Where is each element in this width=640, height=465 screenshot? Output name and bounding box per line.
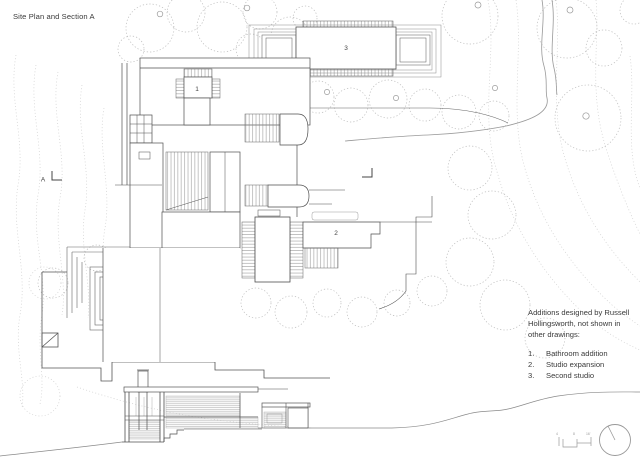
- site-plan-drawing: 1 2 3 A: [0, 0, 640, 465]
- scale-bar: [559, 437, 591, 447]
- building-2-studio-expansion: [242, 196, 432, 309]
- section-a-drawing: [0, 370, 640, 456]
- list-item-number: 2.: [528, 359, 546, 370]
- north-clock-icon: [600, 425, 631, 456]
- scale-tick-label: 8: [573, 432, 575, 436]
- note-line: other drawings:: [528, 329, 638, 340]
- list-item-text: Studio expansion: [546, 359, 604, 370]
- section-letter: A: [41, 177, 46, 184]
- scale-tick-label: 16': [586, 432, 591, 436]
- legend: 4 8 16': [556, 425, 631, 456]
- section-marker-right: [362, 168, 372, 177]
- list-item-text: Bathroom addition: [546, 348, 608, 359]
- main-house-plan: [103, 58, 345, 362]
- topo-contours-right: [488, 0, 640, 350]
- additions-note-intro: Additions designed by Russell Hollingswo…: [528, 307, 638, 340]
- list-item: 3. Second studio: [528, 370, 638, 381]
- drawing-sheet: 1 2 3 A: [0, 0, 640, 465]
- sheet-title: Site Plan and Section A: [13, 12, 95, 21]
- list-item: 2. Studio expansion: [528, 359, 638, 370]
- list-item-number: 1.: [528, 348, 546, 359]
- list-item-text: Second studio: [546, 370, 594, 381]
- label-addition-1: 1: [195, 86, 199, 93]
- scale-tick-label: 4: [556, 432, 558, 436]
- note-line: Additions designed by Russell: [528, 307, 638, 318]
- label-addition-2: 2: [334, 230, 338, 237]
- section-marker-left: [52, 171, 62, 180]
- note-line: Hollingsworth, not shown in: [528, 318, 638, 329]
- additions-list: 1. Bathroom addition 2. Studio expansion…: [528, 348, 638, 381]
- list-item: 1. Bathroom addition: [528, 348, 638, 359]
- label-addition-3: 3: [344, 45, 348, 52]
- additions-note: Additions designed by Russell Hollingswo…: [528, 307, 638, 381]
- list-item-number: 3.: [528, 370, 546, 381]
